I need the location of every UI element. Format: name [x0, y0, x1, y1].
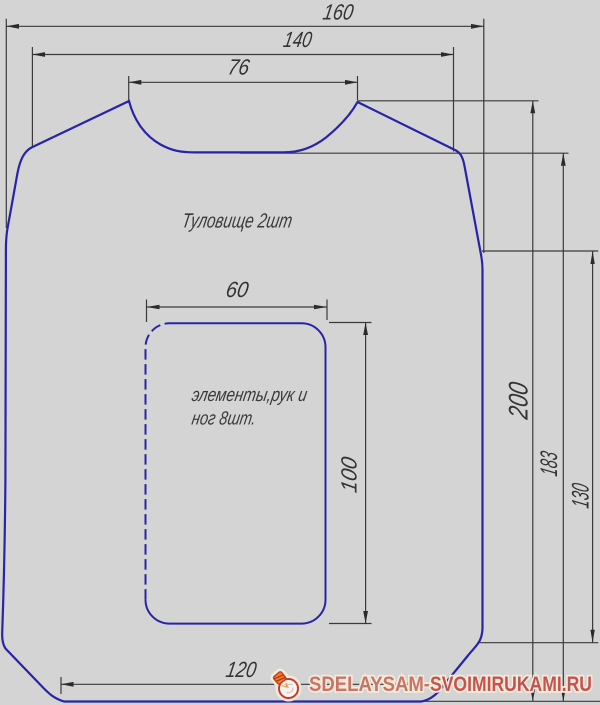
svg-text:Туловище 2шт: Туловище 2шт	[180, 210, 294, 233]
svg-text:100: 100	[337, 454, 362, 494]
svg-text:140: 140	[282, 27, 315, 52]
svg-text:SVOIMIRUKAMI.RU: SVOIMIRUKAMI.RU	[430, 673, 592, 696]
svg-text:элементы,рук и: элементы,рук и	[190, 385, 309, 406]
svg-text:160: 160	[321, 0, 356, 24]
svg-text:183: 183	[536, 449, 563, 478]
svg-text:200: 200	[503, 380, 534, 422]
svg-text:ног 8шт.: ног 8шт.	[190, 409, 258, 430]
svg-text:120: 120	[224, 657, 259, 682]
svg-text:SDELAYSAM-: SDELAYSAM-	[309, 673, 430, 696]
svg-text:130: 130	[568, 481, 595, 510]
